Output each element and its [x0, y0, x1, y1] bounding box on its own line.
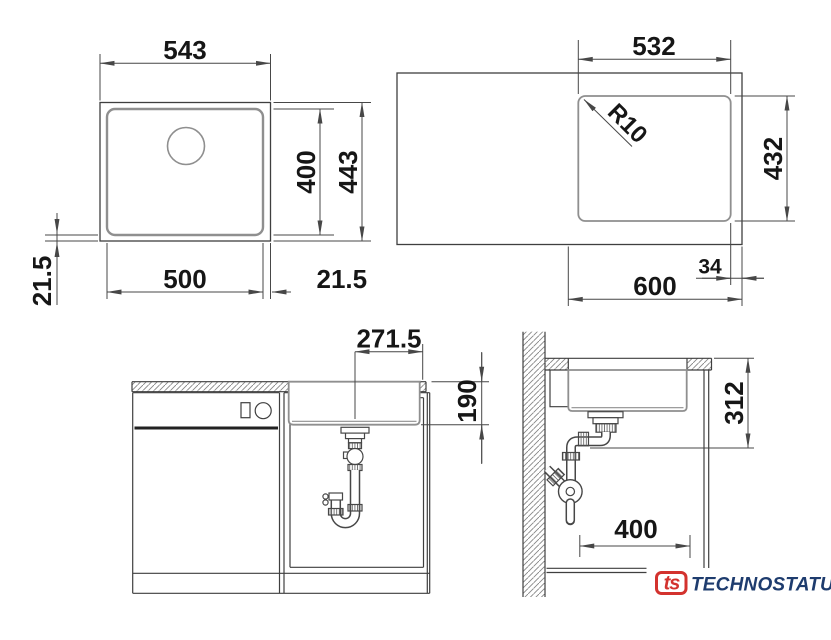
strainer-body: [346, 433, 365, 439]
cutout-edge: [578, 96, 730, 221]
strainer-neck: [349, 439, 362, 443]
dim-drain-offset-label: 271.5: [356, 324, 421, 354]
sink-outer-edge: [100, 103, 271, 242]
strainer-flange: [341, 427, 369, 433]
dim-cutout-height-label: 432: [758, 137, 788, 180]
linework: [45, 40, 795, 597]
dim-outlet-height-label: 312: [719, 381, 749, 424]
dishwasher-control-panel: [241, 403, 250, 418]
dim-edge-offset-label: 34: [698, 256, 722, 279]
counter-hatch-left: [132, 382, 288, 392]
dishwasher-control-knob: [255, 403, 271, 419]
dim-rim-left-label: 21.5: [27, 256, 57, 307]
cabinet-bottom-lines: [547, 568, 647, 572]
dim-inner-height-label: 400: [291, 150, 321, 193]
counter-hatch-front: [687, 358, 712, 370]
drain-hole: [168, 128, 205, 165]
union-nut: [348, 505, 362, 512]
dim-corner-radius-label: R10: [602, 99, 652, 149]
siphon-front: [323, 427, 369, 523]
basin-front: [289, 382, 420, 425]
dim-outer-height-label: 443: [333, 150, 363, 193]
front-view: [132, 344, 489, 593]
cabinet-side-panel: [704, 370, 709, 568]
strainer-flange: [588, 412, 623, 418]
counter-section-outline: [545, 358, 712, 370]
drawing-canvas: 543 400 443 500 21.5 21.5 532 R10 432 34…: [0, 0, 831, 640]
sink-dimension-drawing: 543 400 443 500 21.5 21.5 532 R10 432 34…: [0, 0, 831, 640]
dim-outer-width-label: 543: [163, 35, 206, 65]
counter-hatch-right: [420, 382, 426, 392]
dim-bowl-depth-label: 190: [452, 379, 482, 422]
union-nut: [596, 424, 616, 433]
dim-cabinet-width-label: 600: [633, 271, 676, 301]
top-view-countertop: [397, 40, 795, 306]
wall-hatch: [523, 332, 545, 597]
ball-joint: [347, 449, 363, 465]
technostatus-logo: ts TECHNOSTATUS: [657, 573, 831, 596]
logo-wordmark: TECHNOSTATUS: [691, 575, 831, 596]
dim-inner-width-label: 500: [163, 264, 206, 294]
strainer-body: [593, 418, 618, 424]
dim-cutout-width-label: 532: [632, 31, 675, 61]
dim-rim-right-label: 21.5: [317, 264, 368, 294]
plinth-lines: [133, 573, 430, 593]
union-nut: [349, 443, 362, 449]
union-nut: [348, 465, 362, 471]
union-nut: [563, 453, 580, 461]
cap-bolt: [323, 500, 328, 505]
union-nut: [579, 432, 589, 446]
cleanout-cap: [329, 493, 343, 500]
counter-hatch-back: [545, 358, 568, 370]
ext-rim-left: [45, 235, 98, 241]
siphon-side: [547, 412, 623, 521]
logo-mark-letters: ts: [664, 573, 681, 595]
union-nut: [329, 509, 344, 516]
side-view: [523, 332, 754, 597]
dim-outlet-distance-label: 400: [614, 514, 657, 544]
countertop-edge: [397, 73, 742, 245]
cap-bolt: [323, 494, 328, 499]
basin-side: [568, 370, 686, 411]
support-profile: [550, 370, 569, 407]
trap-loop-center: [566, 487, 574, 495]
